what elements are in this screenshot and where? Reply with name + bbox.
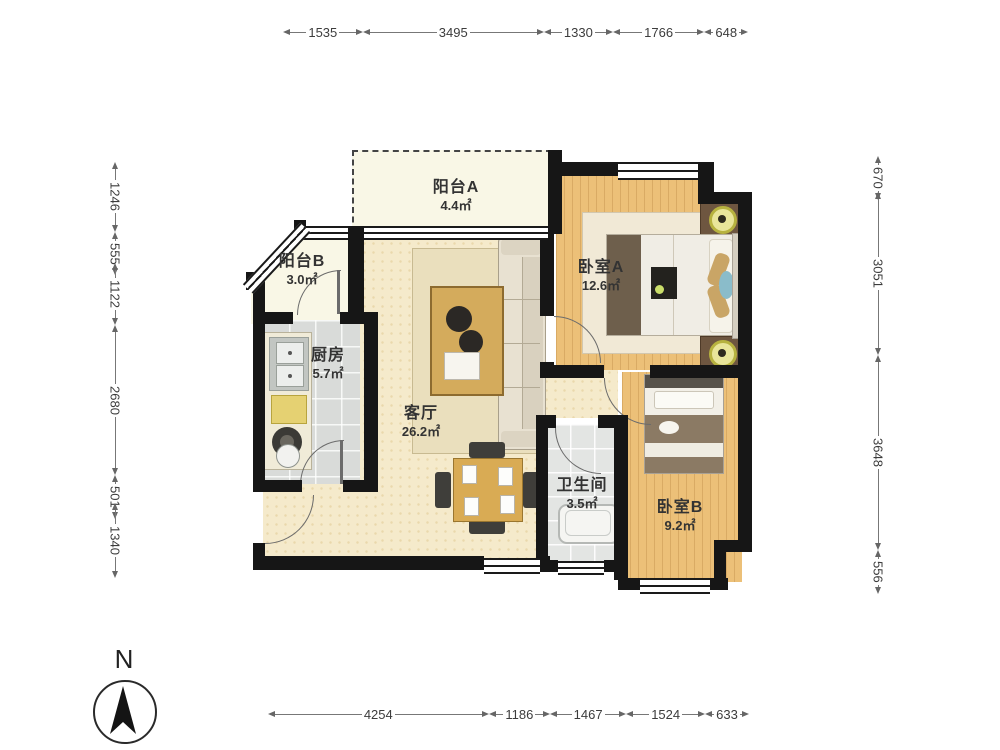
- dimension-segment: 1766: [613, 25, 705, 40]
- arrow-left-icon: [704, 29, 711, 35]
- dimension-row-top: 1535 3495 1330 1766 648: [283, 20, 738, 44]
- table-tray: [444, 352, 480, 380]
- arrow-up-icon: [875, 550, 881, 557]
- wall: [540, 415, 556, 428]
- arrow-right-icon: [356, 29, 363, 35]
- dimension-label: 556: [871, 559, 886, 585]
- bedroom-a-window: [618, 162, 698, 180]
- compass-circle: [93, 680, 157, 744]
- arrow-right-icon: [742, 711, 749, 717]
- wall: [540, 232, 554, 316]
- room-area: 4.4㎡: [396, 198, 516, 214]
- arrow-right-icon: [697, 29, 704, 35]
- arrow-right-icon: [482, 711, 489, 717]
- bed-a-tablet: [651, 267, 677, 299]
- room-name: 阳台B: [258, 252, 346, 272]
- dimension-segment: 1535: [283, 25, 363, 40]
- lamp-center: [718, 349, 726, 357]
- room-area: 5.7㎡: [288, 366, 368, 382]
- dimension-label: 1186: [503, 707, 535, 722]
- floor-plan-page: 1535 3495 1330 1766 648 4254 1186 1467 1…: [0, 0, 1000, 750]
- bedroom-b-window: [640, 578, 710, 594]
- kitchen-door-leaf: [340, 440, 343, 484]
- living-room-window: [484, 558, 540, 574]
- arrow-right-icon: [619, 711, 626, 717]
- arrow-down-icon: [112, 225, 118, 232]
- arrow-up-icon: [112, 232, 118, 239]
- dimension-segment: 670: [871, 156, 886, 192]
- dimension-label: 1535: [306, 25, 339, 40]
- dimension-label: 1330: [562, 25, 595, 40]
- dimension-row-bottom: 4254 1186 1467 1524 633: [268, 702, 738, 726]
- dimension-segment: 1467: [550, 707, 626, 722]
- dimension-label: 1766: [642, 25, 675, 40]
- sofa-seam: [502, 343, 540, 344]
- bed-b: [644, 374, 724, 474]
- dining-chair: [435, 472, 451, 508]
- room-label-balcony-a: 阳台A 4.4㎡: [396, 178, 516, 214]
- arrow-up-icon: [112, 162, 118, 169]
- room-area: 9.2㎡: [636, 518, 724, 534]
- room-name: 卧室B: [636, 498, 724, 518]
- dimension-segment: 3495: [363, 25, 544, 40]
- dimension-label: 670: [871, 165, 886, 191]
- arrow-left-icon: [489, 711, 496, 717]
- place-setting: [464, 497, 479, 516]
- coffee-table: [430, 286, 504, 396]
- dimension-segment: 1340: [108, 503, 123, 578]
- room-area: 12.6㎡: [558, 278, 644, 294]
- dimension-segment: 4254: [268, 707, 489, 722]
- wall: [598, 415, 626, 428]
- place-setting: [462, 465, 477, 484]
- table-decor: [459, 330, 483, 354]
- wall: [618, 578, 640, 590]
- dimension-label: 3495: [437, 25, 470, 40]
- wall: [253, 556, 484, 570]
- room-name: 厨房: [288, 346, 368, 366]
- dimension-segment: 1246: [108, 162, 123, 232]
- table-decor: [446, 306, 472, 332]
- wall: [562, 162, 618, 176]
- bed-b-pillow: [654, 391, 714, 409]
- dimension-label: 648: [713, 25, 739, 40]
- bathroom-window: [558, 561, 604, 575]
- dining-chair: [469, 442, 505, 458]
- wall: [698, 192, 750, 204]
- sofa-seam: [502, 299, 540, 300]
- wall: [340, 312, 364, 324]
- arrow-left-icon: [544, 29, 551, 35]
- arrow-left-icon: [613, 29, 620, 35]
- bed-b-remote: [659, 421, 679, 434]
- dining-table: [453, 458, 523, 522]
- dimension-label: 1122: [108, 278, 123, 310]
- room-name: 阳台A: [396, 178, 516, 198]
- arrow-up-icon: [112, 475, 118, 482]
- wall: [343, 480, 378, 492]
- dimension-label: 1524: [649, 707, 682, 722]
- dimension-row-right: 670 3051 3648 556: [864, 156, 892, 580]
- arrow-left-icon: [705, 711, 712, 717]
- tablet-dot: [655, 285, 664, 294]
- sofa-seam: [502, 387, 540, 388]
- dimension-label: 633: [714, 707, 740, 722]
- dimension-segment: 3648: [871, 355, 886, 550]
- arrow-down-icon: [112, 468, 118, 475]
- arrow-right-icon: [537, 29, 544, 35]
- room-area: 3.0㎡: [258, 272, 346, 288]
- room-area: 26.2㎡: [376, 424, 466, 440]
- dimension-segment: 633: [705, 707, 738, 722]
- dimension-label: 3648: [871, 436, 886, 469]
- arrow-up-icon: [875, 156, 881, 163]
- wall: [540, 365, 604, 378]
- room-label-living-room: 客厅 26.2㎡: [376, 404, 466, 440]
- arrow-up-icon: [112, 503, 118, 510]
- dimension-segment: 3051: [871, 192, 886, 355]
- sofa-armrest: [501, 239, 541, 255]
- arrow-left-icon: [550, 711, 557, 717]
- room-label-bedroom-a: 卧室A 12.6㎡: [558, 258, 644, 294]
- wall: [253, 312, 293, 324]
- arrow-down-icon: [875, 348, 881, 355]
- dimension-segment: 1330: [544, 25, 613, 40]
- room-label-kitchen: 厨房 5.7㎡: [288, 346, 368, 382]
- arrow-up-icon: [875, 355, 881, 362]
- dimension-label: 1467: [572, 707, 605, 722]
- arrow-left-icon: [268, 711, 275, 717]
- wall: [348, 226, 364, 324]
- dimension-label: 4254: [362, 707, 395, 722]
- arrow-right-icon: [741, 29, 748, 35]
- dimension-row-left: 1246 555 1122 2680 501 1340: [101, 162, 129, 578]
- arrow-up-icon: [112, 263, 118, 270]
- stove-dial: [276, 444, 300, 468]
- wall: [650, 365, 752, 378]
- dimension-segment: 501: [108, 475, 123, 503]
- north-label: N: [78, 644, 170, 678]
- arrow-left-icon: [363, 29, 370, 35]
- room-area: 3.5㎡: [540, 496, 624, 512]
- dimension-segment: 1524: [626, 707, 705, 722]
- place-setting: [498, 467, 513, 486]
- dimension-segment: 556: [871, 550, 886, 580]
- arrow-up-icon: [112, 325, 118, 332]
- dimension-label: 1340: [108, 524, 123, 557]
- cutting-board: [271, 395, 307, 424]
- place-setting: [500, 495, 515, 514]
- room-name: 卧室A: [558, 258, 644, 278]
- dimension-segment: 1186: [489, 707, 551, 722]
- wall: [253, 278, 265, 490]
- room-label-bathroom: 卫生间 3.5㎡: [540, 476, 624, 512]
- balcony-a-window: [364, 226, 548, 240]
- lamp: [709, 340, 737, 368]
- room-label-bedroom-b: 卧室B 9.2㎡: [636, 498, 724, 534]
- room-name: 卫生间: [540, 476, 624, 496]
- dimension-label: 3051: [871, 257, 886, 290]
- bed-b-band: [645, 443, 723, 457]
- bathtub-inner: [565, 510, 611, 536]
- arrow-down-icon: [875, 587, 881, 594]
- wall: [548, 150, 562, 234]
- lamp: [709, 206, 737, 234]
- dimension-segment: 648: [704, 25, 738, 40]
- arrow-down-icon: [112, 571, 118, 578]
- lamp-center: [718, 215, 726, 223]
- dimension-segment: 1122: [108, 263, 123, 326]
- wall: [364, 312, 378, 492]
- arrow-down-icon: [875, 543, 881, 550]
- room-name: 客厅: [376, 404, 466, 424]
- dimension-label: 2680: [108, 384, 123, 417]
- north-arrow-icon: [95, 682, 151, 738]
- north-compass: N: [78, 644, 170, 748]
- arrow-down-icon: [112, 318, 118, 325]
- dimension-segment: 2680: [108, 325, 123, 475]
- arrow-right-icon: [543, 711, 550, 717]
- arrow-right-icon: [698, 711, 705, 717]
- dimension-segment: 555: [108, 232, 123, 263]
- sofa-armrest: [501, 431, 541, 447]
- arrow-left-icon: [626, 711, 633, 717]
- arrow-up-icon: [875, 192, 881, 199]
- arrow-right-icon: [606, 29, 613, 35]
- arrow-left-icon: [283, 29, 290, 35]
- wall: [253, 480, 302, 492]
- room-label-balcony-b: 阳台B 3.0㎡: [258, 252, 346, 288]
- dimension-label: 1246: [108, 180, 123, 213]
